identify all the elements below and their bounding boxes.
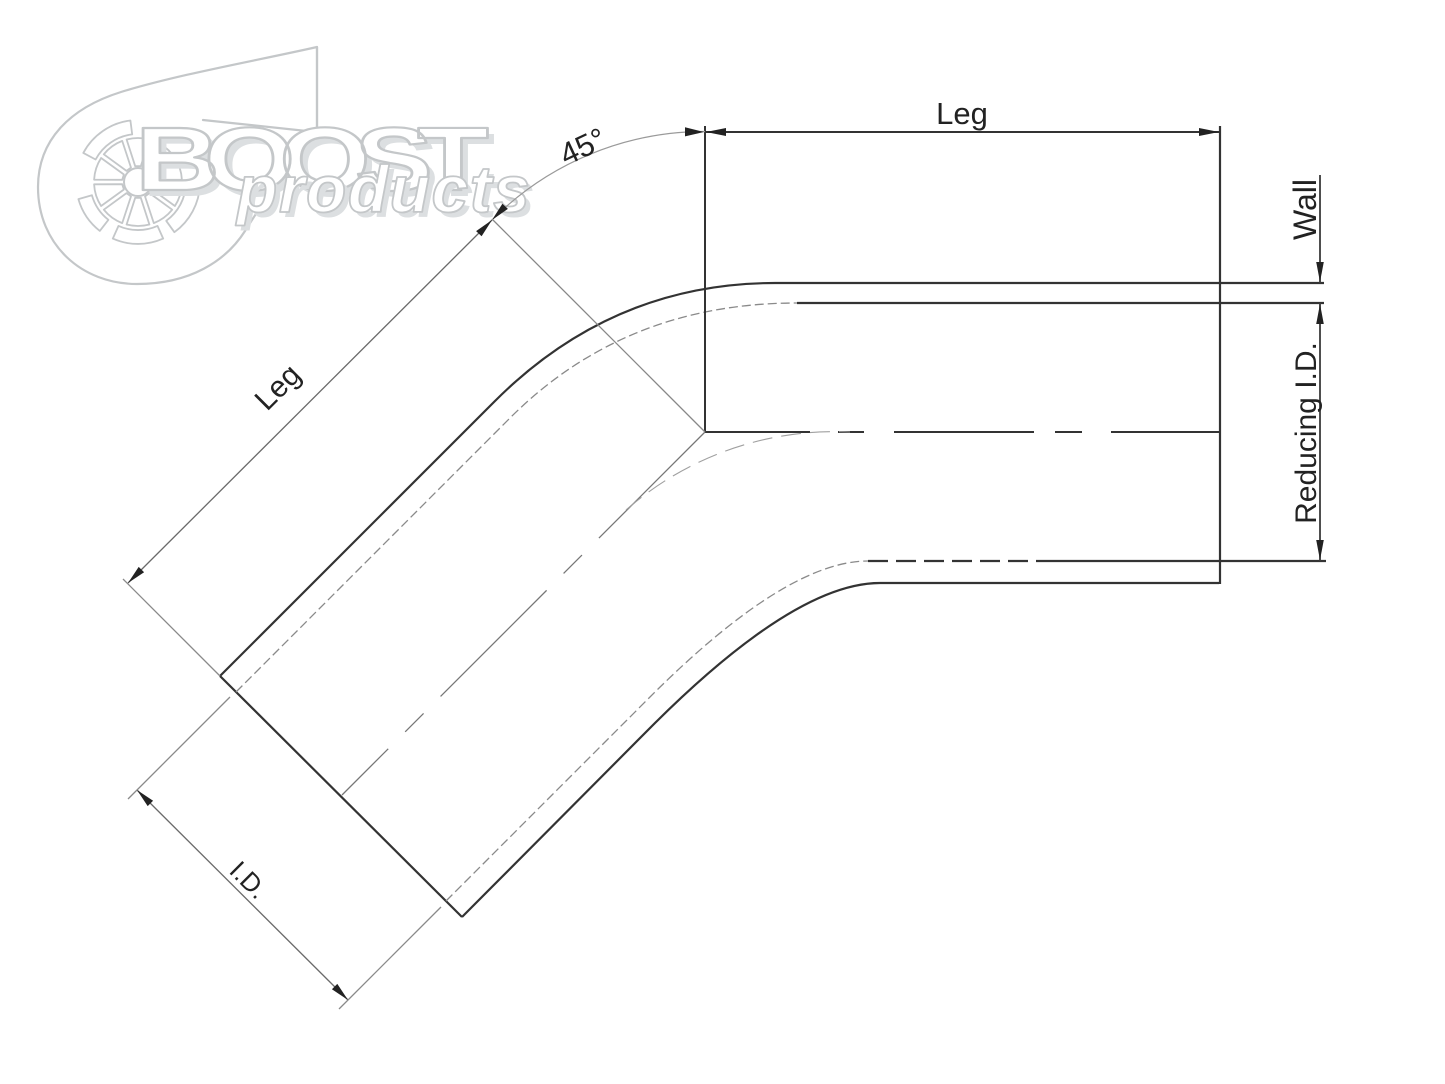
svg-text:Leg: Leg (936, 96, 988, 131)
svg-text:Wall: Wall (1287, 179, 1323, 240)
svg-text:Reducing I.D.: Reducing I.D. (1290, 342, 1323, 524)
svg-text:products: products (235, 152, 531, 226)
